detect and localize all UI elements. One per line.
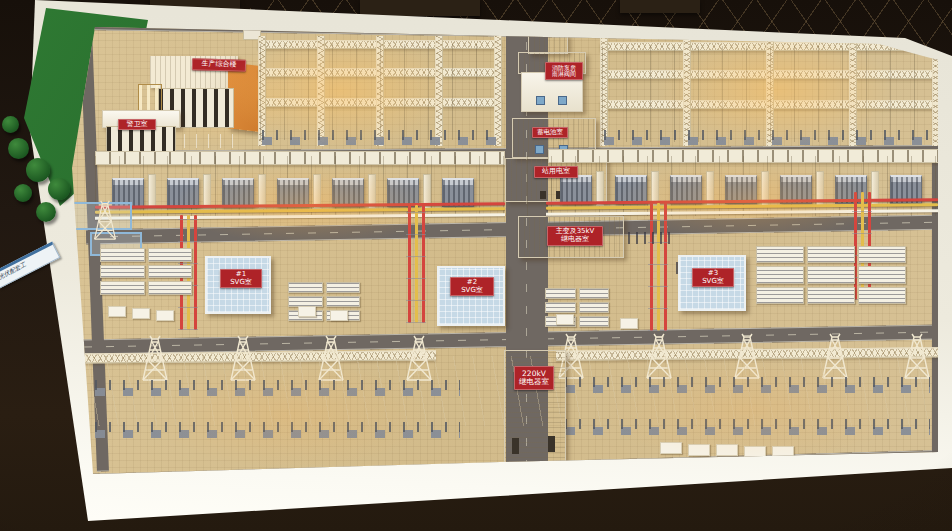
bay-equipment-row <box>565 419 930 435</box>
tree <box>14 184 32 202</box>
battery-rack <box>148 248 193 262</box>
equipment-table <box>688 444 710 456</box>
equipment-table <box>330 310 348 321</box>
suspended-wires <box>260 44 500 140</box>
switchyard-north-east <box>600 36 940 148</box>
battery-rack <box>326 296 361 307</box>
battery-rack <box>100 248 145 262</box>
equipment-table <box>132 308 150 319</box>
sign-text-line2: 继电器室 <box>519 378 549 386</box>
battery-rack <box>148 281 193 295</box>
sign-text: 生产综合楼 <box>201 61 236 69</box>
battery-rack <box>545 302 576 313</box>
relay-building-door <box>512 438 519 454</box>
equipment-table <box>620 318 638 329</box>
tree <box>2 116 19 133</box>
background-structure <box>360 0 480 16</box>
tree <box>8 138 29 159</box>
sign-text: 警卫室 <box>127 121 148 129</box>
sign-text: 站用电室 <box>542 168 570 176</box>
battery-rack <box>579 288 610 299</box>
battery-rack <box>545 288 576 299</box>
svg-room-2-building <box>437 266 505 326</box>
vertical-bus-run <box>648 203 668 331</box>
sign-text-line2: 雨淋阀间 <box>552 71 576 77</box>
background-structure <box>620 0 700 13</box>
sign-transformer-relay-room: 主变及35kV 继电器室 <box>547 226 603 246</box>
suspended-wires <box>602 46 938 142</box>
battery-rack <box>858 287 906 304</box>
bay-equipment-row <box>565 377 930 393</box>
sign-svg-room-1: #1 SVG室 <box>220 269 262 288</box>
firewall <box>148 174 156 209</box>
sign-admin-building: 生产综合楼 <box>192 58 246 71</box>
bus-supports <box>648 203 668 331</box>
sign-guard-room: 警卫室 <box>118 119 156 130</box>
battery-rack <box>579 302 610 313</box>
battery-rack <box>807 287 855 304</box>
sign-text-line2: SVG室 <box>230 279 252 287</box>
battery-rack <box>326 282 361 293</box>
equipment-table <box>156 310 174 321</box>
scale-model-photo: 光伏配套工 <box>0 0 952 531</box>
model-base: 生产综合楼 警卫室 消防泵房 雨淋阀间 蓄电池室 站用电室 主变及35kV 继电… <box>0 0 952 531</box>
battery-rack-cluster <box>756 246 906 304</box>
transformer-unit <box>222 178 254 207</box>
battery-room-window <box>535 145 544 154</box>
guard-room-facade <box>106 126 176 154</box>
sign-pump-house: 消防泵房 雨淋阀间 <box>545 62 583 80</box>
transformer-unit <box>615 175 647 204</box>
battery-rack <box>756 266 804 283</box>
battery-rack <box>807 246 855 263</box>
battery-rack <box>100 281 145 295</box>
equipment-table <box>660 442 682 454</box>
battery-rack <box>148 265 193 279</box>
switchgear-row <box>604 130 936 145</box>
sign-text-line2: SVG室 <box>461 287 483 295</box>
pump-house-window <box>536 96 545 105</box>
sign-svg-room-2: #2 SVG室 <box>450 277 494 296</box>
pump-house-window <box>558 96 567 105</box>
switchgear-row <box>262 130 498 145</box>
equipment-table <box>108 306 126 317</box>
battery-rack <box>756 287 804 304</box>
battery-rack <box>807 266 855 283</box>
firewall <box>203 174 211 209</box>
battery-rack <box>858 246 906 263</box>
sign-station-service-room: 站用电室 <box>534 166 578 178</box>
sign-text: 蓄电池室 <box>537 129 563 136</box>
vertical-bus-run <box>406 205 426 323</box>
sign-svg-room-3: #3 SVG室 <box>692 268 734 287</box>
switchyard-north-west <box>258 34 502 148</box>
equipment-table <box>298 306 316 317</box>
sign-battery-room: 蓄电池室 <box>532 127 568 138</box>
bay-equipment-row <box>95 422 460 438</box>
transformer-unit <box>560 175 592 204</box>
battery-rack <box>858 266 906 283</box>
sign-text-line2: 继电器室 <box>561 236 589 244</box>
battery-rack-cluster <box>100 248 192 295</box>
bus-supports <box>406 205 426 323</box>
sign-text-line2: SVG室 <box>702 278 724 286</box>
equipment-table <box>716 444 738 456</box>
relay-building-door <box>548 436 555 452</box>
insulator-row <box>628 232 672 244</box>
tree <box>48 178 70 200</box>
tree <box>36 202 56 222</box>
tree <box>26 158 50 182</box>
transformer-unit <box>167 178 199 207</box>
battery-rack <box>288 282 323 293</box>
battery-rack <box>579 316 610 327</box>
battery-rack <box>756 246 804 263</box>
battery-rack-cluster <box>545 288 609 327</box>
lattice-tower <box>92 200 118 240</box>
sign-relay-room-220kv: 220kV 继电器室 <box>514 366 554 390</box>
transformer-unit <box>277 178 309 207</box>
battery-rack <box>100 265 145 279</box>
equipment-table <box>556 314 574 325</box>
bay-equipment-row <box>95 380 460 396</box>
